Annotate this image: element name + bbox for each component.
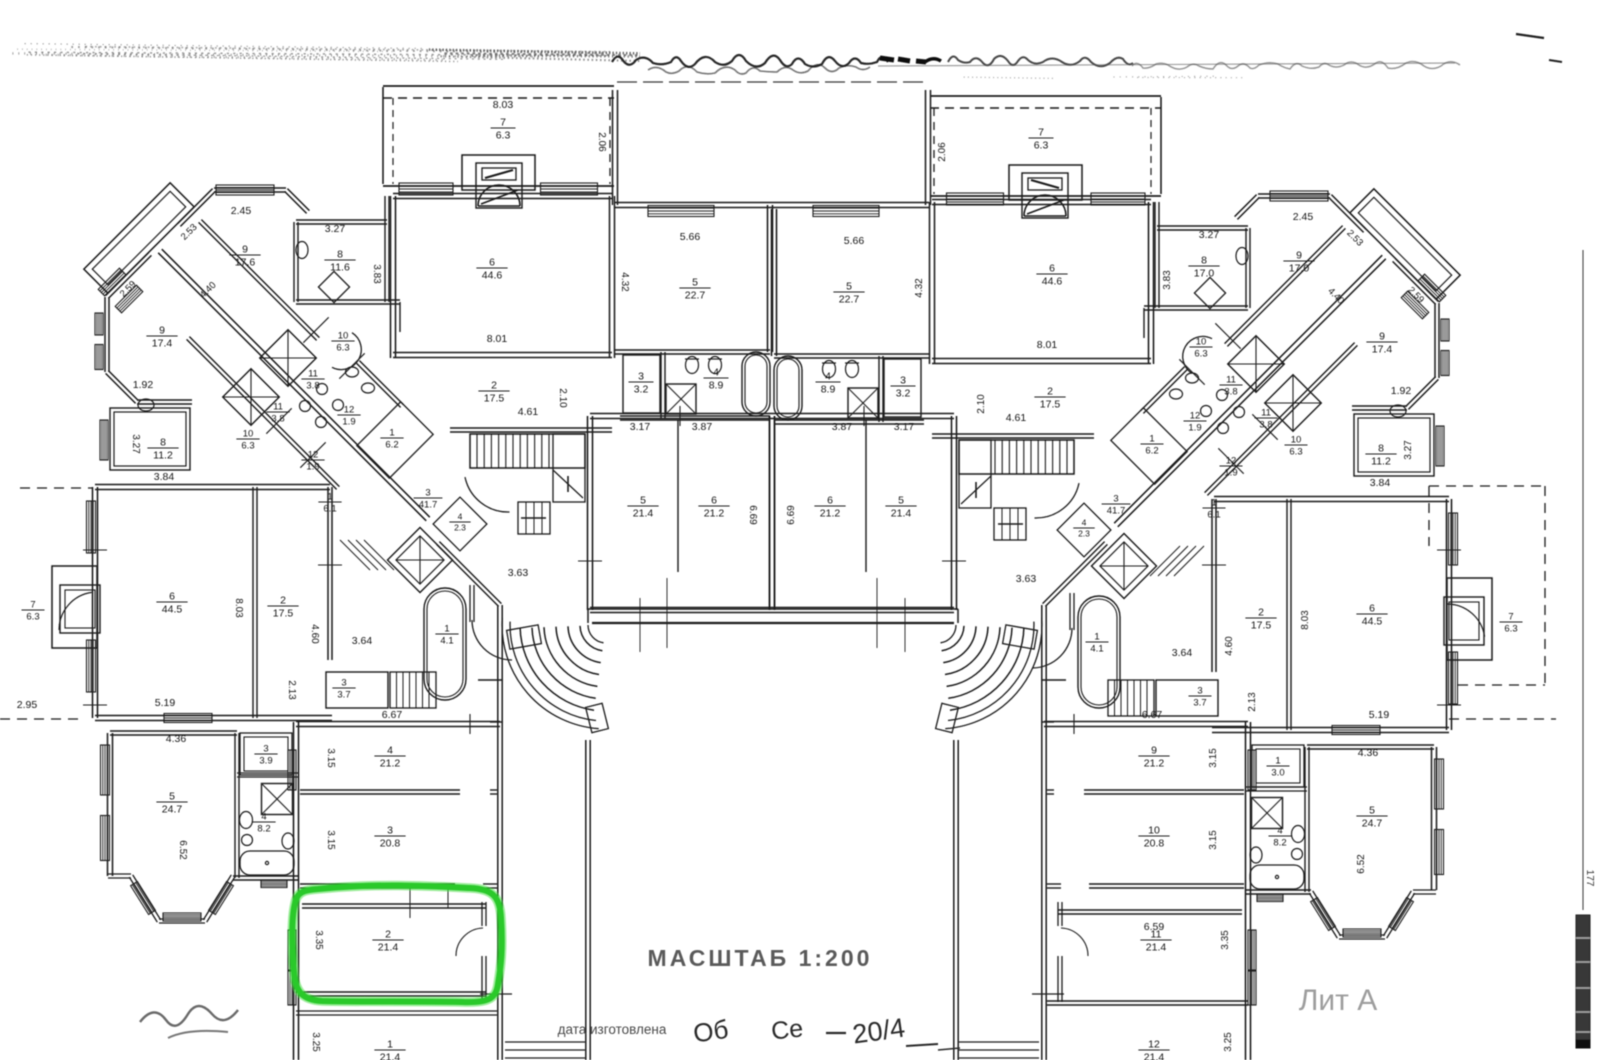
svg-text:9: 9 (1151, 745, 1157, 757)
svg-text:2.3: 2.3 (454, 523, 466, 533)
svg-text:2: 2 (1258, 607, 1264, 619)
svg-text:5.19: 5.19 (1369, 709, 1390, 721)
svg-text:12: 12 (1190, 411, 1201, 422)
svg-text:9: 9 (1296, 250, 1302, 262)
svg-text:6.52: 6.52 (177, 840, 188, 860)
svg-text:11.6: 11.6 (330, 262, 350, 274)
svg-text:2: 2 (491, 380, 497, 392)
svg-text:24.7: 24.7 (162, 804, 183, 816)
svg-text:6.2: 6.2 (1145, 446, 1158, 457)
svg-text:3.64: 3.64 (1172, 647, 1193, 659)
svg-text:3.8: 3.8 (271, 414, 284, 425)
svg-text:5: 5 (898, 495, 904, 507)
svg-text:4.36: 4.36 (166, 733, 187, 745)
svg-text:9: 9 (1379, 331, 1385, 343)
svg-text:3.2: 3.2 (896, 388, 911, 400)
svg-text:1.92: 1.92 (133, 379, 154, 391)
svg-text:2: 2 (385, 929, 391, 941)
svg-text:3.9: 3.9 (259, 756, 272, 767)
svg-text:8: 8 (1201, 255, 1207, 267)
svg-text:6.69: 6.69 (786, 505, 797, 525)
svg-text:8: 8 (160, 437, 166, 449)
svg-text:44.6: 44.6 (1042, 276, 1063, 288)
svg-text:21.4: 21.4 (378, 942, 399, 954)
svg-text:11: 11 (308, 369, 318, 380)
svg-text:4.60: 4.60 (309, 624, 320, 644)
svg-text:3: 3 (341, 678, 346, 689)
svg-text:10: 10 (1148, 825, 1160, 837)
svg-text:Лит А: Лит А (1299, 984, 1378, 1017)
svg-text:6: 6 (1049, 263, 1055, 275)
svg-text:10: 10 (243, 429, 254, 440)
svg-text:6.52: 6.52 (1356, 854, 1367, 874)
svg-text:2.45: 2.45 (1293, 211, 1314, 223)
svg-text:11.2: 11.2 (1371, 456, 1391, 468)
svg-text:24.7: 24.7 (1362, 818, 1383, 830)
svg-text:4: 4 (1082, 518, 1087, 528)
svg-text:21.4: 21.4 (891, 508, 912, 520)
svg-text:4.1: 4.1 (1090, 644, 1103, 655)
svg-text:22.7: 22.7 (839, 294, 860, 306)
svg-text:8.03: 8.03 (233, 598, 244, 618)
svg-text:4.32: 4.32 (619, 272, 630, 292)
svg-text:8: 8 (1378, 443, 1384, 455)
svg-text:3.17: 3.17 (894, 421, 915, 433)
svg-text:5.66: 5.66 (680, 231, 701, 243)
svg-text:6: 6 (711, 495, 717, 507)
svg-text:8.03: 8.03 (1300, 610, 1311, 630)
svg-text:6.3: 6.3 (1034, 140, 1049, 152)
svg-text:8.9: 8.9 (709, 380, 724, 392)
svg-text:4: 4 (713, 367, 719, 379)
svg-text:3: 3 (900, 375, 906, 387)
svg-text:3.15: 3.15 (1208, 748, 1219, 768)
svg-text:3.87: 3.87 (832, 421, 853, 433)
svg-text:2.06: 2.06 (596, 132, 607, 152)
svg-text:3.35: 3.35 (313, 930, 324, 950)
svg-text:6.2: 6.2 (385, 440, 398, 451)
svg-text:8.01: 8.01 (487, 333, 508, 345)
svg-text:3.83: 3.83 (1162, 270, 1173, 290)
svg-text:21.2: 21.2 (1144, 758, 1165, 770)
svg-text:6.3: 6.3 (336, 343, 349, 354)
svg-text:2.10: 2.10 (557, 388, 568, 408)
svg-text:21.4: 21.4 (380, 1052, 401, 1060)
svg-text:3.15: 3.15 (1208, 830, 1219, 850)
svg-text:41.7: 41.7 (419, 500, 438, 511)
svg-text:6.59: 6.59 (1144, 921, 1165, 933)
svg-text:10: 10 (338, 331, 349, 342)
svg-text:11.2: 11.2 (153, 450, 173, 462)
svg-text:3.83: 3.83 (371, 264, 382, 284)
svg-text:3.27: 3.27 (130, 434, 141, 454)
svg-text:10: 10 (1291, 435, 1302, 446)
svg-text:21.2: 21.2 (820, 508, 841, 520)
svg-text:21.2: 21.2 (380, 758, 401, 770)
svg-text:4: 4 (387, 745, 393, 757)
svg-text:6.69: 6.69 (747, 505, 758, 525)
svg-text:4.1: 4.1 (440, 636, 453, 647)
svg-text:1: 1 (1094, 632, 1099, 643)
svg-text:3.87: 3.87 (692, 421, 713, 433)
svg-text:12: 12 (308, 450, 319, 461)
svg-text:1.92: 1.92 (1391, 385, 1412, 397)
svg-text:5: 5 (1369, 805, 1375, 817)
svg-text:17.5: 17.5 (1251, 620, 1272, 632)
svg-text:3.17: 3.17 (630, 421, 651, 433)
svg-text:20.8: 20.8 (1144, 838, 1165, 850)
svg-text:3.35: 3.35 (1220, 930, 1231, 950)
svg-text:177: 177 (1584, 870, 1595, 887)
svg-text:6: 6 (169, 591, 175, 603)
svg-text:3.27: 3.27 (325, 223, 346, 235)
svg-text:6.3: 6.3 (1504, 624, 1517, 635)
svg-text:3.15: 3.15 (325, 830, 336, 850)
svg-text:1: 1 (387, 1039, 393, 1051)
svg-text:11: 11 (273, 402, 283, 413)
svg-text:4.61: 4.61 (1006, 412, 1027, 424)
svg-text:5.66: 5.66 (844, 235, 865, 247)
svg-text:6.67: 6.67 (382, 709, 403, 721)
svg-text:12: 12 (344, 405, 355, 416)
svg-text:2.06: 2.06 (937, 142, 948, 162)
svg-text:5: 5 (846, 281, 852, 293)
svg-text:1: 1 (1211, 498, 1216, 509)
svg-text:1: 1 (1149, 434, 1154, 445)
svg-text:4.36: 4.36 (1358, 747, 1379, 759)
svg-text:3.27: 3.27 (1199, 229, 1220, 241)
svg-text:21.4: 21.4 (1146, 942, 1167, 954)
svg-text:9: 9 (159, 325, 165, 337)
svg-text:17.4: 17.4 (1372, 344, 1393, 356)
svg-text:2.3: 2.3 (1078, 529, 1090, 539)
svg-text:17.0: 17.0 (1194, 268, 1215, 280)
svg-text:12: 12 (1148, 1039, 1160, 1051)
svg-text:44.5: 44.5 (1362, 616, 1383, 628)
svg-text:3.8: 3.8 (306, 381, 319, 392)
svg-text:17.5: 17.5 (484, 393, 505, 405)
svg-text:3.84: 3.84 (154, 471, 175, 483)
svg-text:3: 3 (263, 744, 268, 755)
svg-text:4: 4 (1277, 826, 1282, 837)
svg-text:17.4: 17.4 (152, 338, 173, 350)
svg-text:44.6: 44.6 (482, 270, 503, 282)
svg-text:8.2: 8.2 (1273, 838, 1286, 849)
svg-text:3.15: 3.15 (325, 748, 336, 768)
svg-text:2.10: 2.10 (976, 394, 987, 414)
svg-text:21.4: 21.4 (1144, 1052, 1165, 1060)
svg-text:1: 1 (444, 624, 449, 635)
svg-text:7: 7 (500, 117, 506, 129)
svg-text:21.4: 21.4 (633, 508, 654, 520)
svg-text:6.3: 6.3 (1289, 447, 1302, 458)
svg-text:Се: Се (770, 1014, 805, 1045)
svg-text:3.8: 3.8 (1259, 420, 1272, 431)
svg-text:2.13: 2.13 (286, 680, 297, 700)
svg-text:3.63: 3.63 (508, 567, 529, 579)
svg-text:6: 6 (1369, 603, 1375, 615)
svg-text:6.1: 6.1 (323, 504, 336, 515)
svg-text:1.9: 1.9 (342, 417, 355, 428)
svg-text:2.45: 2.45 (231, 205, 252, 217)
svg-text:1.9: 1.9 (306, 462, 319, 473)
svg-text:8.9: 8.9 (821, 384, 836, 396)
svg-text:Об: Об (691, 1014, 730, 1049)
svg-text:3.84: 3.84 (1370, 477, 1391, 489)
svg-text:6.67: 6.67 (1142, 709, 1163, 721)
svg-text:6: 6 (489, 257, 495, 269)
svg-text:2.13: 2.13 (1247, 692, 1258, 712)
svg-text:6.3: 6.3 (496, 130, 511, 142)
svg-text:6: 6 (827, 495, 833, 507)
svg-text:4.61: 4.61 (518, 406, 539, 418)
svg-text:1: 1 (327, 492, 332, 503)
svg-text:4.32: 4.32 (914, 278, 925, 298)
svg-text:11: 11 (1226, 375, 1236, 386)
svg-text:8: 8 (337, 249, 343, 261)
svg-text:1: 1 (1275, 756, 1280, 767)
svg-text:17.5: 17.5 (273, 608, 294, 620)
svg-text:3.2: 3.2 (634, 384, 649, 396)
svg-text:5.19: 5.19 (155, 697, 176, 709)
svg-text:2: 2 (1047, 386, 1053, 398)
svg-text:7: 7 (1038, 127, 1044, 139)
svg-text:МАСШТАБ 1:200: МАСШТАБ 1:200 (648, 945, 873, 971)
svg-text:6.3: 6.3 (26, 612, 39, 623)
svg-text:20.8: 20.8 (380, 838, 401, 850)
svg-text:3.25: 3.25 (1223, 1032, 1234, 1052)
svg-text:8.2: 8.2 (257, 824, 270, 835)
svg-text:9: 9 (242, 244, 248, 256)
svg-text:5: 5 (640, 495, 646, 507)
svg-text:8.03: 8.03 (493, 99, 514, 111)
svg-text:1: 1 (389, 428, 394, 439)
svg-text:12: 12 (1226, 456, 1237, 467)
svg-text:5: 5 (692, 277, 698, 289)
svg-text:6.1: 6.1 (1207, 510, 1220, 521)
svg-text:1.9: 1.9 (1188, 423, 1201, 434)
svg-text:2.95: 2.95 (17, 699, 38, 711)
svg-text:3.7: 3.7 (1193, 698, 1206, 709)
svg-text:3.8: 3.8 (1224, 387, 1237, 398)
svg-text:7: 7 (30, 600, 35, 611)
svg-text:5: 5 (169, 791, 175, 803)
svg-text:6.3: 6.3 (241, 441, 254, 452)
svg-text:17.5: 17.5 (1040, 399, 1061, 411)
svg-text:10: 10 (1196, 337, 1207, 348)
svg-text:3: 3 (387, 825, 393, 837)
svg-text:41.7: 41.7 (1107, 506, 1126, 517)
svg-text:3: 3 (1197, 686, 1202, 697)
svg-text:7: 7 (1508, 612, 1513, 623)
svg-text:4: 4 (261, 812, 266, 823)
svg-text:8.01: 8.01 (1037, 339, 1058, 351)
svg-text:3.25: 3.25 (310, 1032, 321, 1052)
svg-text:6.3: 6.3 (1194, 349, 1207, 360)
svg-text:3.0: 3.0 (1271, 768, 1284, 779)
svg-text:44.5: 44.5 (162, 604, 183, 616)
svg-text:4: 4 (458, 512, 463, 522)
svg-text:3: 3 (638, 371, 644, 383)
svg-text:11: 11 (1261, 408, 1271, 419)
svg-text:21.2: 21.2 (704, 508, 725, 520)
svg-text:3.64: 3.64 (352, 635, 373, 647)
svg-text:1.9: 1.9 (1224, 468, 1237, 479)
svg-text:дата изготовлена: дата изготовлена (558, 1022, 667, 1037)
svg-text:2: 2 (280, 595, 286, 607)
svg-text:4: 4 (825, 371, 831, 383)
svg-text:3: 3 (425, 488, 430, 499)
svg-text:3.27: 3.27 (1403, 440, 1414, 460)
svg-text:22.7: 22.7 (685, 290, 706, 302)
svg-text:4.60: 4.60 (1224, 636, 1235, 656)
svg-text:3.7: 3.7 (337, 690, 350, 701)
svg-text:3.63: 3.63 (1016, 573, 1037, 585)
svg-text:3: 3 (1113, 494, 1118, 505)
